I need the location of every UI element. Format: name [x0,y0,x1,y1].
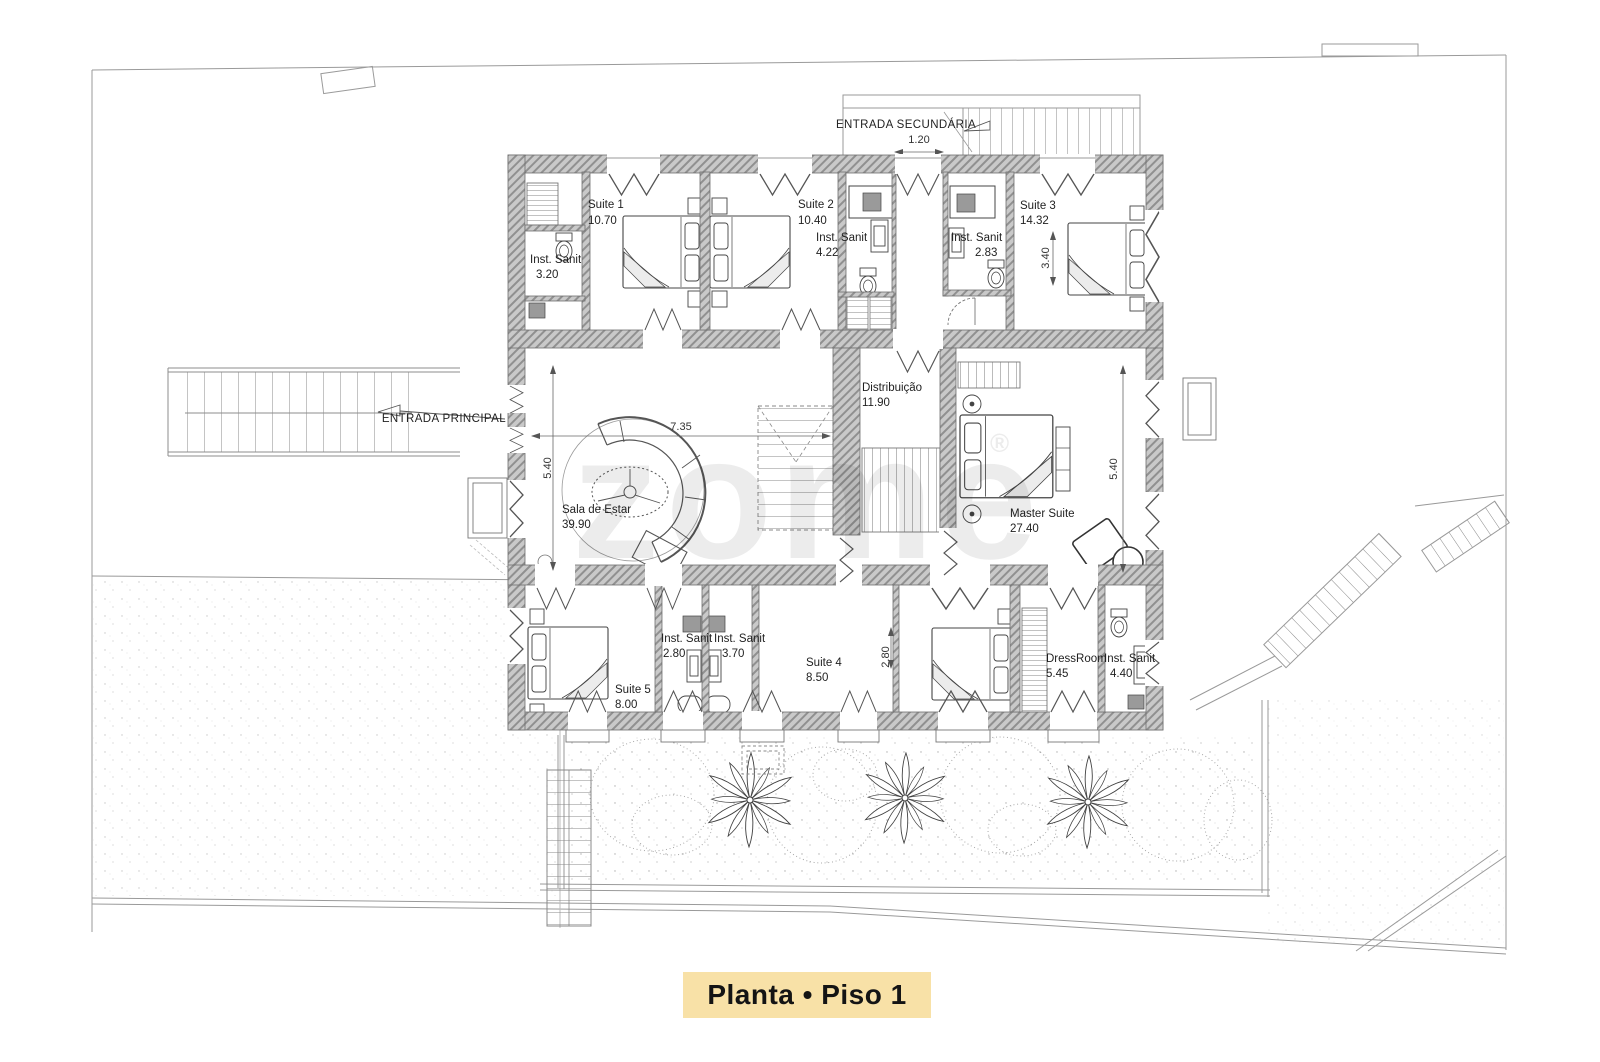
svg-text:Suite 4: Suite 4 [806,657,842,669]
floor-plan-page: ENTRADA PRINCIPAL ENTRADA SECUNDÁRIA 1.2… [0,0,1600,1062]
page-title: Planta • Piso 1 [707,979,906,1010]
svg-text:8.00: 8.00 [615,699,637,711]
bed-icon [1068,223,1148,295]
lawn-right [1268,700,1504,946]
dim-suite3: 3.40 [1040,247,1052,268]
bed-icon [932,628,1012,700]
toilet-icon [1111,609,1127,637]
svg-text:Inst. Sanit: Inst. Sanit [661,633,713,645]
svg-text:10.40: 10.40 [798,215,827,227]
svg-text:Inst. Sanit: Inst. Sanit [816,232,868,244]
site-structure [321,66,375,93]
svg-text:Inst. Sanit: Inst. Sanit [530,254,582,266]
entrada-secundaria-label: ENTRADA SECUNDÁRIA [836,118,976,131]
svg-text:2.80: 2.80 [663,648,685,660]
exterior-stair-bottom [547,770,591,926]
stair-treads [178,372,420,452]
stair-treads [963,108,1140,158]
entrance-secundaria: ENTRADA SECUNDÁRIA 1.20 [836,95,1140,158]
svg-text:14.32: 14.32 [1020,215,1049,227]
svg-text:Inst. Sanit: Inst. Sanit [1104,653,1156,665]
bed-icon [528,627,608,699]
svg-text:Suite 2: Suite 2 [798,199,834,211]
svg-text:Suite 5: Suite 5 [615,684,651,696]
exterior-stairs-right [1190,495,1509,710]
svg-text:Distribuição: Distribuição [862,382,922,394]
lawn-left [93,581,558,896]
svg-text:Suite 3: Suite 3 [1020,200,1056,212]
svg-text:3.20: 3.20 [536,269,558,281]
svg-text:zome: zome [572,401,1043,596]
svg-text:®: ® [990,428,1009,458]
dim-sala-height: 5.40 [542,457,554,478]
toilet-icon [988,260,1004,288]
entrada-principal-label: ENTRADA PRINCIPAL [382,413,506,425]
watermark: zome ® [572,401,1043,596]
svg-text:10.70: 10.70 [588,215,617,227]
svg-text:DressRoom: DressRoom [1046,653,1107,665]
closet-icon [1022,608,1047,712]
dim-suite4: 2.80 [880,646,892,667]
dim-secondary-entrance: 1.20 [908,134,929,146]
svg-text:8.50: 8.50 [806,672,828,684]
svg-text:4.40: 4.40 [1110,668,1132,680]
entrance-principal: ENTRADA PRINCIPAL [168,368,506,456]
bed-icon [623,216,703,288]
bed-icon [710,216,790,288]
floor-plan-canvas: ENTRADA PRINCIPAL ENTRADA SECUNDÁRIA 1.2… [0,0,1600,1062]
closet-icon [527,183,558,225]
svg-text:2.83: 2.83 [975,247,997,259]
svg-text:3.70: 3.70 [722,648,744,660]
svg-text:4.22: 4.22 [816,247,838,259]
svg-text:5.45: 5.45 [1046,668,1068,680]
svg-text:Suite 1: Suite 1 [588,199,624,211]
dim-master-height: 5.40 [1108,458,1120,479]
title-badge: Planta • Piso 1 [683,972,931,1018]
svg-text:Inst. Sanit: Inst. Sanit [714,633,766,645]
svg-text:Inst. Sanit: Inst. Sanit [951,232,1003,244]
